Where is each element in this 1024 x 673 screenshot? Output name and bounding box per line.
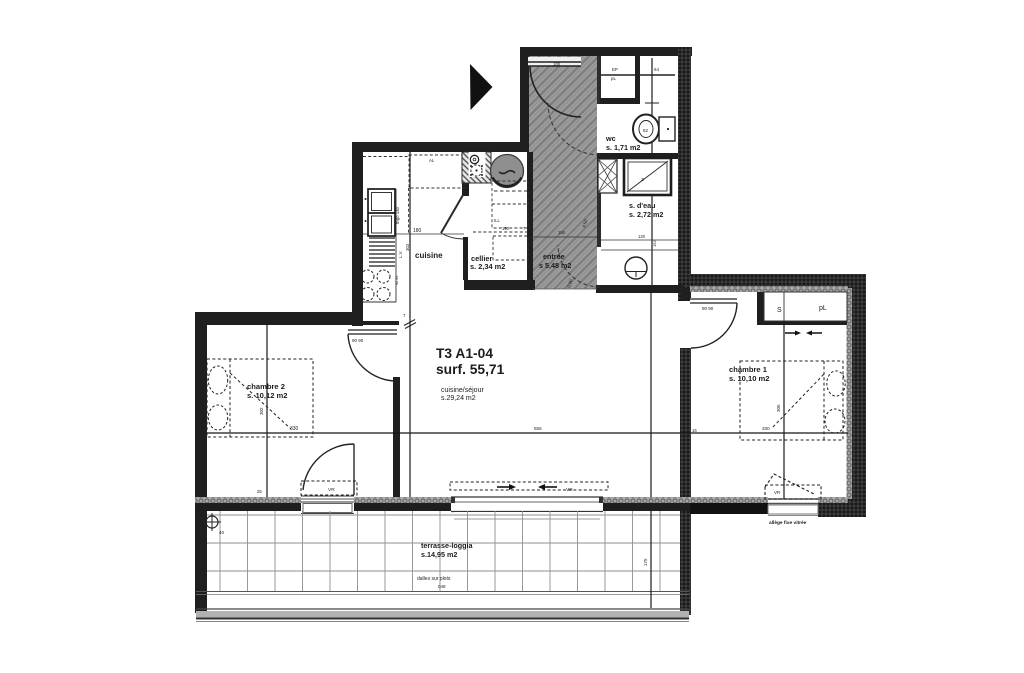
svg-text:s 5,48 m2: s 5,48 m2 xyxy=(539,261,571,270)
svg-text:150: 150 xyxy=(558,230,566,235)
svg-text:s. 10,12 m2: s. 10,12 m2 xyxy=(247,391,288,400)
svg-text:cuisine: cuisine xyxy=(415,251,443,260)
svg-text:40: 40 xyxy=(219,530,225,535)
svg-text:chambre 2: chambre 2 xyxy=(247,382,285,391)
svg-text:s.14,95 m2: s.14,95 m2 xyxy=(421,550,457,559)
svg-text:180: 180 xyxy=(413,228,422,234)
svg-text:180: 180 xyxy=(553,62,561,67)
svg-text:64: 64 xyxy=(654,67,659,72)
svg-text:175: 175 xyxy=(643,558,648,566)
svg-text:T3 A1-04: T3 A1-04 xyxy=(436,346,493,361)
svg-text:L.V.: L.V. xyxy=(398,251,403,258)
svg-text:chambre 1: chambre 1 xyxy=(729,365,768,374)
svg-text:190: 190 xyxy=(502,226,510,231)
svg-text:s. 10,10 m2: s. 10,10 m2 xyxy=(729,374,770,383)
svg-text:EP: EP xyxy=(612,67,618,72)
svg-text:555: 555 xyxy=(534,426,542,431)
svg-text:wc: wc xyxy=(605,134,616,143)
svg-text:25: 25 xyxy=(257,489,262,494)
svg-text:120: 120 xyxy=(638,234,646,239)
svg-text:pL: pL xyxy=(819,305,827,312)
svg-text:s. 1,71 m2: s. 1,71 m2 xyxy=(606,143,640,152)
svg-text:049: 049 xyxy=(438,584,446,589)
svg-text:16: 16 xyxy=(692,428,697,433)
svg-text:s. d'eau: s. d'eau xyxy=(629,201,655,210)
svg-text:305: 305 xyxy=(776,404,781,412)
svg-text:entrée: entrée xyxy=(543,252,565,261)
svg-text:VR: VR xyxy=(774,490,781,495)
svg-text:pL: pL xyxy=(611,76,616,81)
svg-text:90 90: 90 90 xyxy=(702,306,714,311)
svg-text:90 90: 90 90 xyxy=(352,338,364,343)
svg-text:330: 330 xyxy=(762,426,770,431)
svg-text:82: 82 xyxy=(643,128,649,133)
svg-text:S: S xyxy=(777,307,782,314)
svg-text:VR: VR xyxy=(328,487,335,493)
svg-text:VR: VR xyxy=(566,487,573,493)
svg-text:s.29,24 m2: s.29,24 m2 xyxy=(441,395,476,402)
svg-text:92 92: 92 92 xyxy=(395,275,399,285)
svg-text:terrasse-loggia: terrasse-loggia xyxy=(421,541,474,550)
svg-text:152: 152 xyxy=(652,240,657,247)
svg-text:s. 2,72 m2: s. 2,72 m2 xyxy=(629,210,663,219)
svg-text:surf. 55,71: surf. 55,71 xyxy=(436,362,505,377)
svg-text:s. 2,34 m2: s. 2,34 m2 xyxy=(470,262,505,271)
svg-text:cuisine/séjour: cuisine/séjour xyxy=(441,387,484,394)
svg-text:allège fixe vitrée: allège fixe vitrée xyxy=(769,520,807,526)
svg-text:ILL: ILL xyxy=(494,218,500,223)
svg-text:302: 302 xyxy=(405,243,410,251)
svg-text:302: 302 xyxy=(259,407,264,415)
svg-text:dalles sur plots: dalles sur plots xyxy=(417,576,451,582)
svg-text:Z: Z xyxy=(641,177,644,182)
svg-text:AL: AL xyxy=(429,158,435,163)
svg-text:330: 330 xyxy=(290,426,299,432)
